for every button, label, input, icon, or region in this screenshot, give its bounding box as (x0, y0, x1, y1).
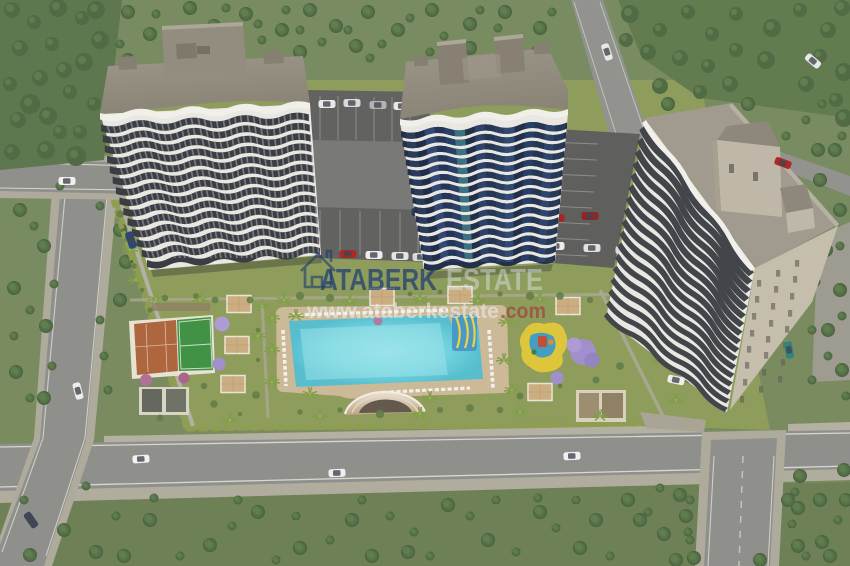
svg-text:ESTATE: ESTATE (446, 262, 543, 297)
svg-text:ATABERK: ATABERK (320, 262, 437, 297)
svg-text:www.ataberkestate: www.ataberkestate (306, 300, 499, 323)
svg-text:.com: .com (500, 300, 546, 323)
